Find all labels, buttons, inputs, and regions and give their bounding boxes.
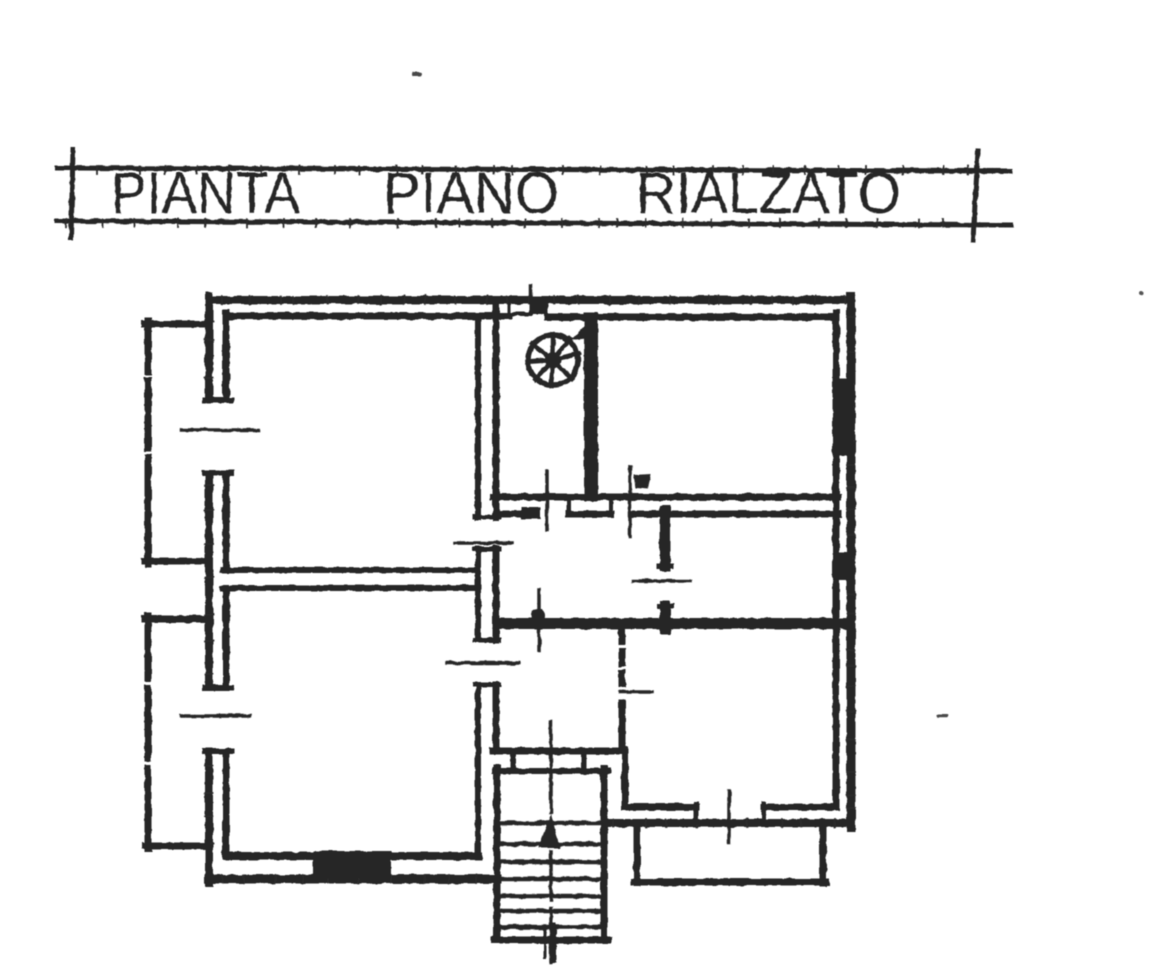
svg-text:PIANTA: PIANTA — [111, 161, 300, 226]
svg-text:PIANO: PIANO — [383, 161, 559, 226]
svg-text:RIALZATO: RIALZATO — [636, 161, 901, 226]
